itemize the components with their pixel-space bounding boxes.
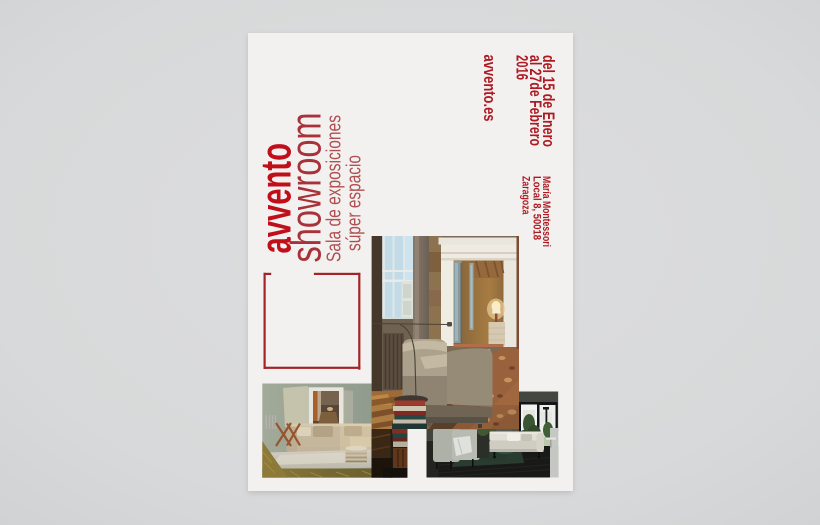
svg-text:súper espacio: súper espacio <box>342 155 365 251</box>
svg-text:2016: 2016 <box>513 55 531 80</box>
svg-text:Local 8, 50018: Local 8, 50018 <box>531 176 543 240</box>
svg-text:Zaragoza: Zaragoza <box>519 176 531 215</box>
svg-text:avvento.es: avvento.es <box>480 55 498 122</box>
